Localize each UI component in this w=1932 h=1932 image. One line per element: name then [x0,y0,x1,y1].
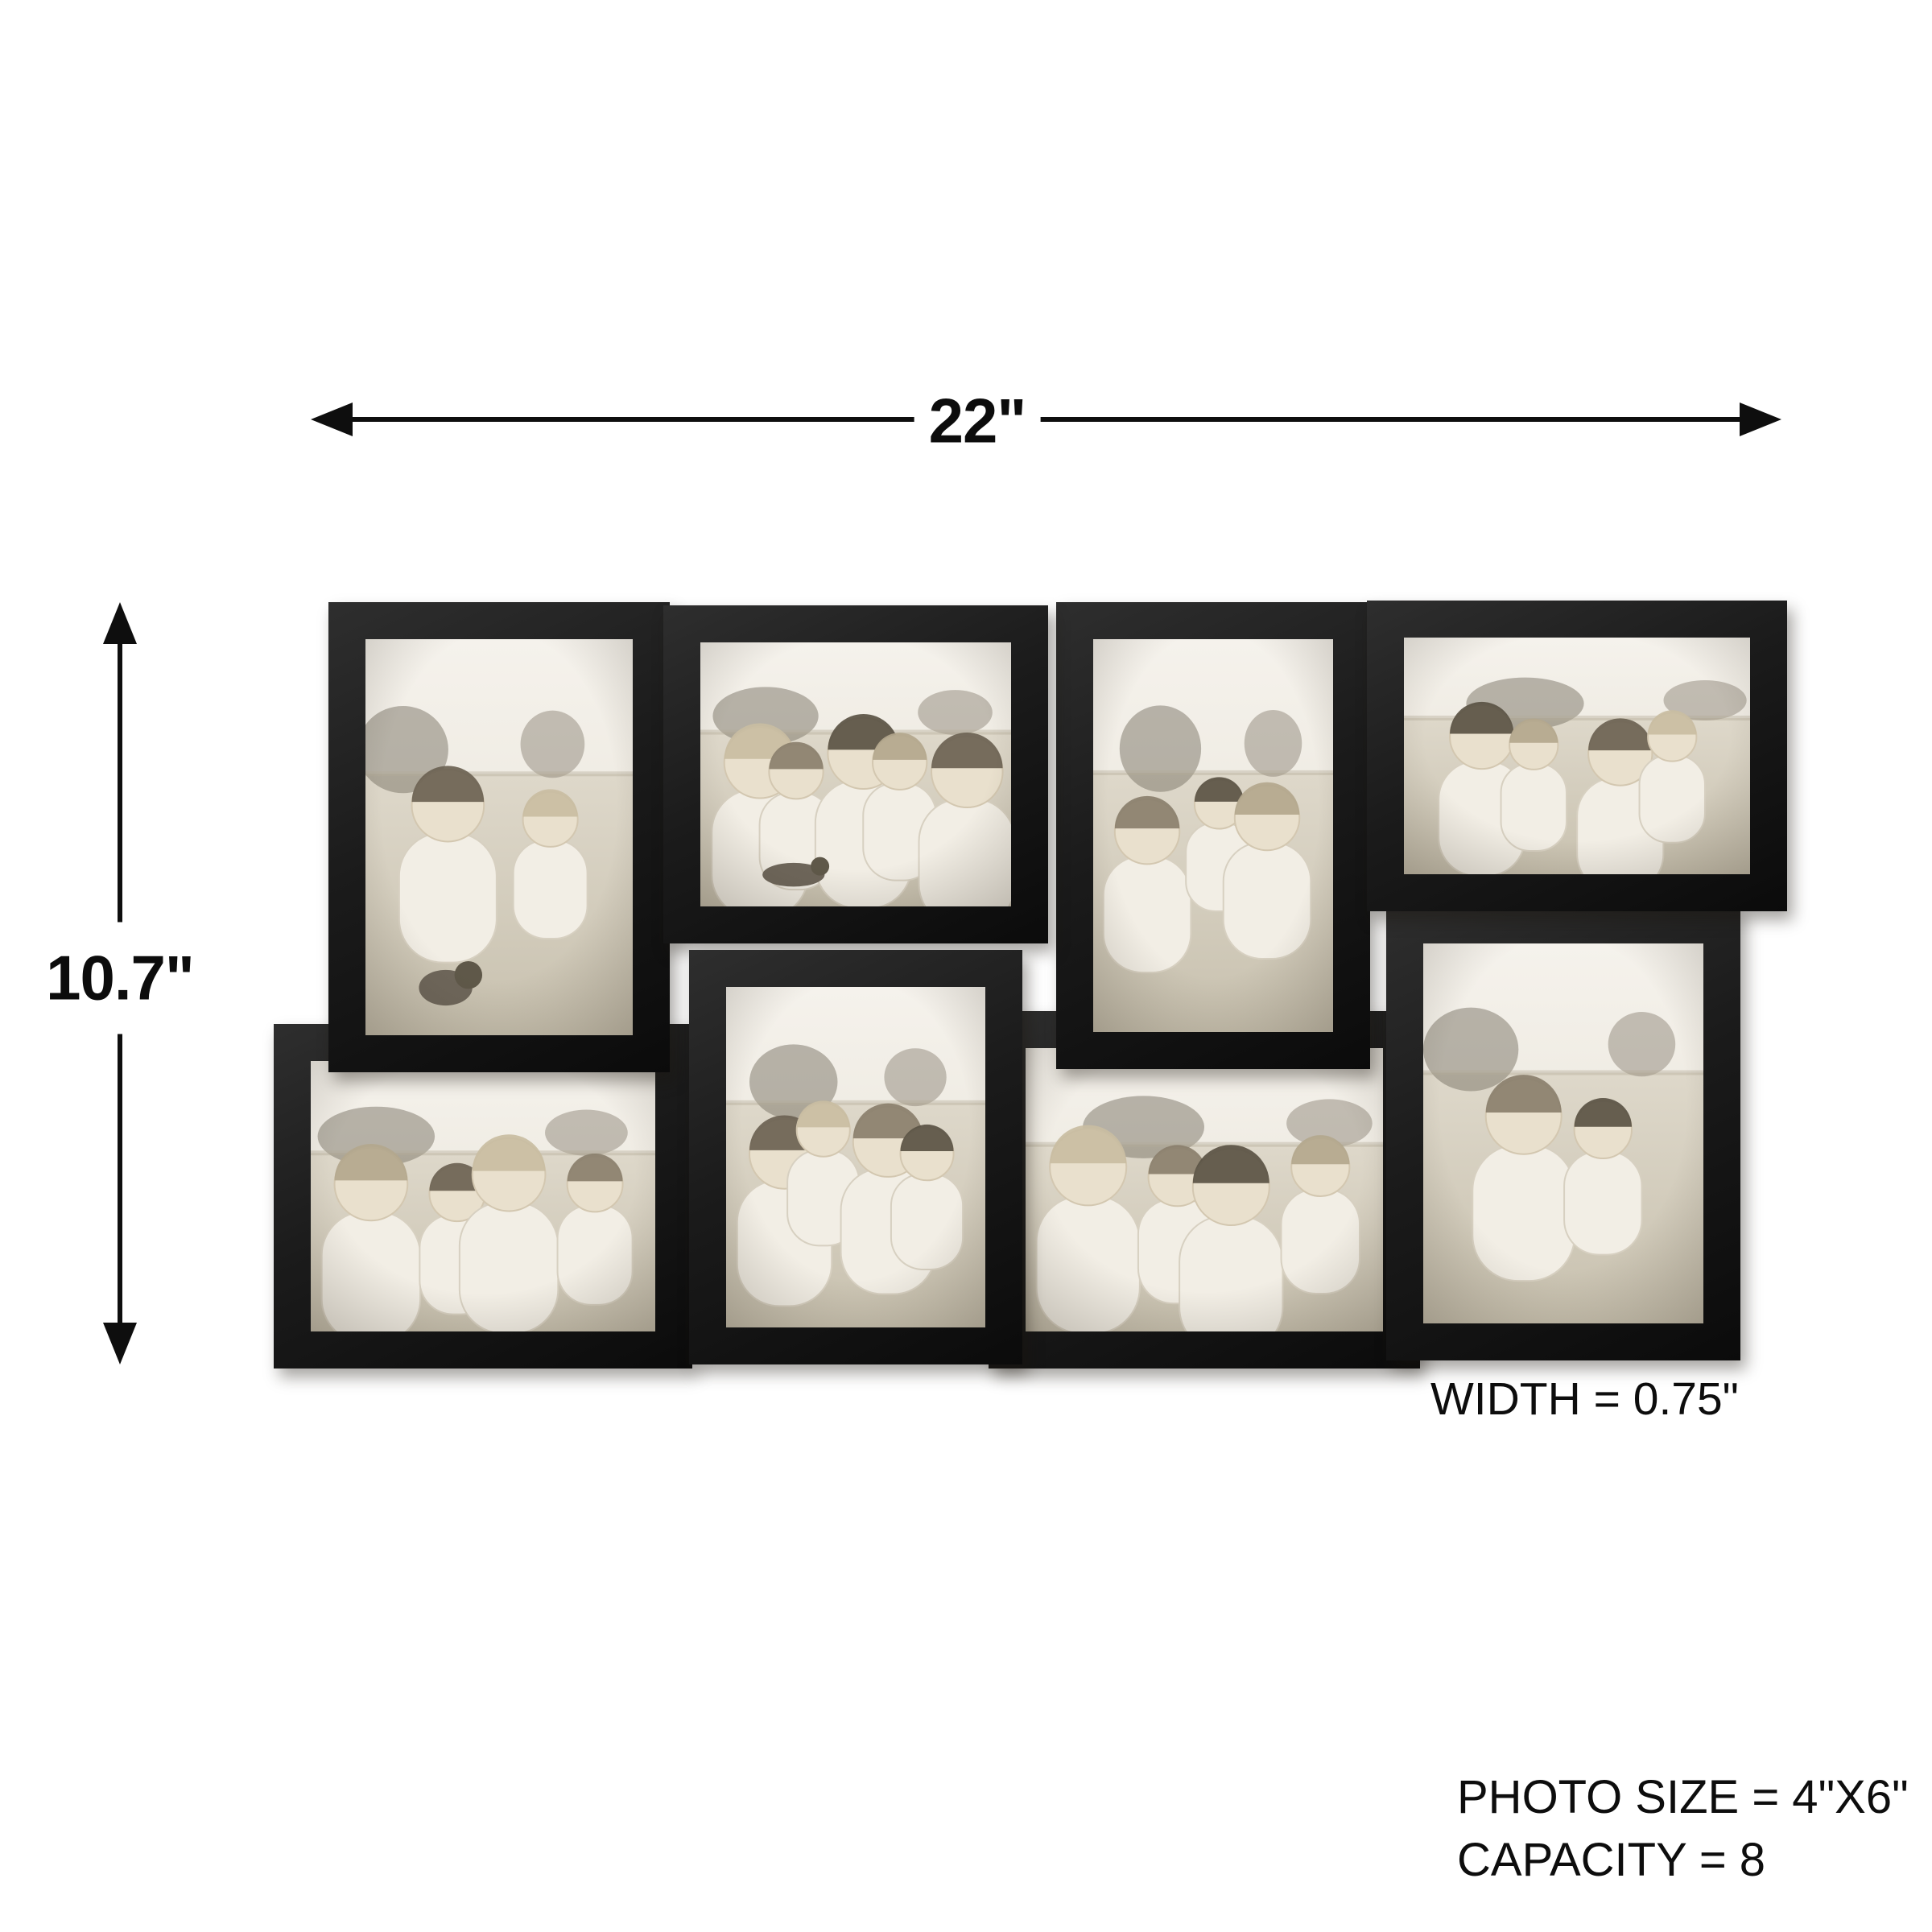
photo-6 [726,987,985,1327]
photo-size-spec: PHOTO SIZE = 4"X6" [1457,1766,1909,1829]
photo-7 [1026,1048,1383,1331]
photo-frame-3 [1056,602,1370,1069]
photo-4 [1404,638,1750,874]
photo-8 [1423,943,1703,1323]
photo-5 [311,1061,655,1331]
photo-scene [1404,638,1750,874]
photo-frame-2 [663,605,1048,943]
photo-scene [1026,1048,1383,1331]
photo-frame-1 [328,602,670,1072]
photo-frame-4 [1367,601,1787,911]
photo-scene [365,639,633,1035]
photo-frame-5 [274,1024,692,1368]
capacity-spec: CAPACITY = 8 [1457,1829,1909,1892]
photo-1 [365,639,633,1035]
photo-scene [1093,639,1333,1032]
photo-scene [1423,943,1703,1323]
photo-scene [700,642,1011,906]
photo-3 [1093,639,1333,1032]
product-dimension-diagram: 22" 10.7" WIDTH = 0.75" PHOTO SIZE = 4"X… [0,0,1932,1932]
photo-scene [726,987,985,1327]
photo-2 [700,642,1011,906]
photo-scene [311,1061,655,1331]
frame-width-note: WIDTH = 0.75" [1430,1373,1739,1426]
product-specs: PHOTO SIZE = 4"X6" CAPACITY = 8 [1457,1766,1909,1892]
collage-frame [0,0,1932,1932]
photo-frame-6 [689,950,1022,1364]
photo-frame-8 [1386,906,1740,1360]
